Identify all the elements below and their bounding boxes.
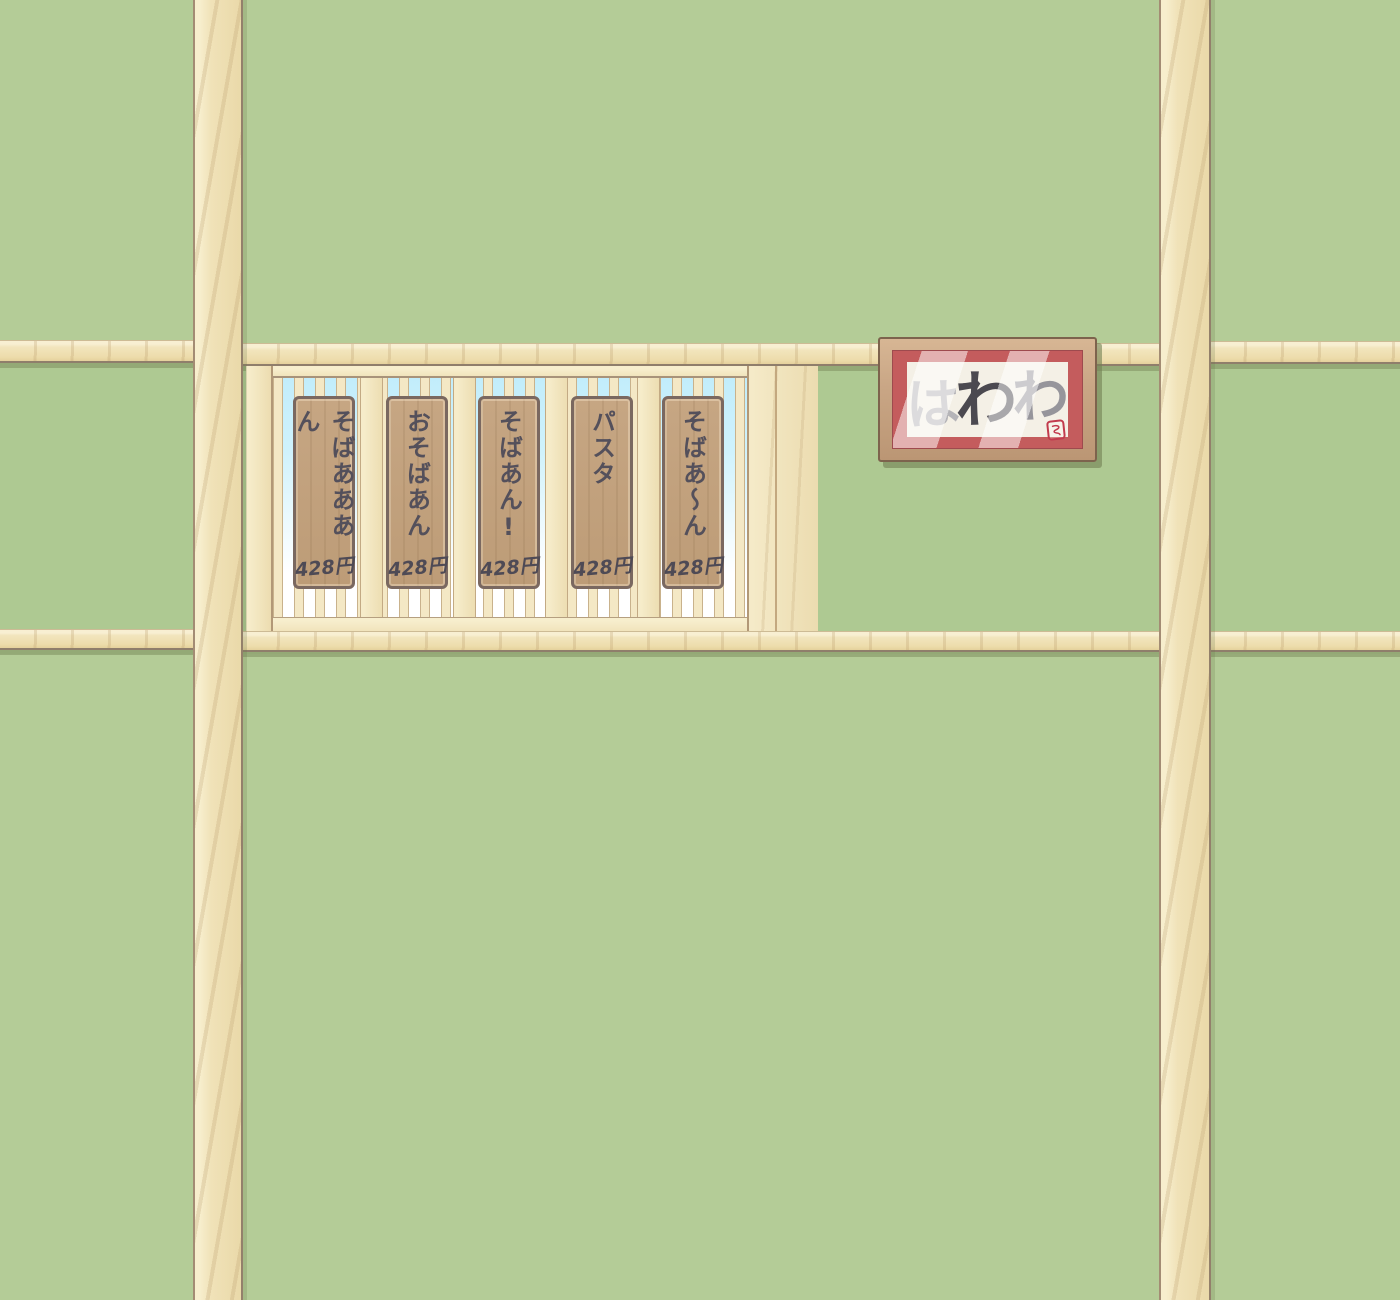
frame-mat: は わ わ [892,350,1083,449]
menu-sign[interactable]: そばあ〜ん 428円 [662,396,724,589]
menu-sign[interactable]: そばあああん 428円 [293,396,355,589]
menu-sign-price: 428円 [294,550,355,582]
scene-wall: そばあああん 428円 おそばあん 428円 そばあん! 428円 パスタ 42… [0,0,1400,1300]
beam-top-left-segment [0,340,194,363]
calligraphy-char: は [905,376,961,432]
pillar-right [1159,0,1211,1300]
calligraphy-text: は わ わ [906,359,1070,440]
menu-sign-label: そばあん! [492,409,527,553]
calligraphy-char: わ [954,367,1018,431]
menu-signs: そばあああん 428円 おそばあん 428円 そばあん! 428円 パスタ 42… [246,366,816,631]
menu-sign-price: 428円 [479,550,540,582]
menu-sign-price: 428円 [387,550,448,582]
menu-sign[interactable]: パスタ 428円 [571,396,633,589]
menu-sign-label: そばあああん [289,409,359,553]
menu-sign-label: そばあ〜ん [676,409,711,553]
seal-stamp-icon [1046,419,1066,441]
picture-frame[interactable]: は わ わ [878,337,1097,462]
menu-sign[interactable]: そばあん! 428円 [478,396,540,589]
pillar-left [193,0,243,1300]
menu-window: そばあああん 428円 おそばあん 428円 そばあん! 428円 パスタ 42… [246,366,818,631]
calligraphy-char: わ [1011,368,1070,427]
menu-sign-label: パスタ [585,409,620,553]
menu-sign-price: 428円 [663,550,724,582]
beam-bottom-right-segment [1210,631,1400,652]
menu-sign[interactable]: おそばあん 428円 [386,396,448,589]
beam-top-right-segment [1210,341,1400,364]
menu-sign-label: おそばあん [400,409,435,553]
seal-squiggle-icon [1050,423,1062,437]
menu-sign-price: 428円 [572,550,633,582]
beam-bottom-middle-segment [243,631,1160,652]
frame-paper: は わ わ [907,362,1068,437]
beam-bottom-left-segment [0,629,194,650]
